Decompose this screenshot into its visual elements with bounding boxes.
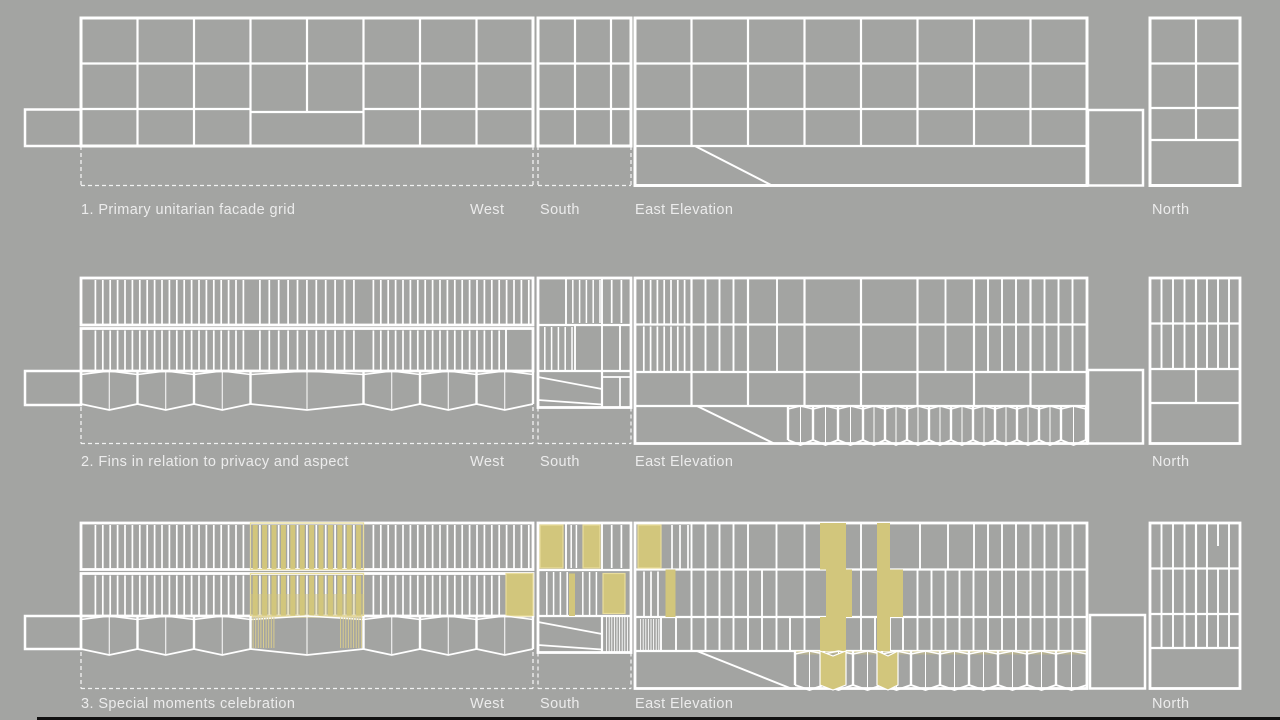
row1-label-north: North — [1152, 202, 1189, 218]
row3-label-north: North — [1152, 696, 1189, 712]
row2-label-west: West — [470, 454, 504, 470]
row1-label-west: West — [470, 202, 504, 218]
row2-label-east: East Elevation — [635, 454, 733, 470]
row2-label-south: South — [540, 454, 580, 470]
row1-title: 1. Primary unitarian facade grid — [81, 202, 295, 218]
row2-title: 2. Fins in relation to privacy and aspec… — [81, 454, 349, 470]
row1-label-south: South — [540, 202, 580, 218]
row3-label-south: South — [540, 696, 580, 712]
row3-title: 3. Special moments celebration — [81, 696, 295, 712]
facade-study-diagram: 1. Primary unitarian facade grid West So… — [0, 0, 1280, 720]
row2-label-north: North — [1152, 454, 1189, 470]
row3-label-east: East Elevation — [635, 696, 733, 712]
row3-label-west: West — [470, 696, 504, 712]
elevation-linework — [0, 0, 1280, 720]
row1-label-east: East Elevation — [635, 202, 733, 218]
bottom-bar — [37, 717, 1280, 720]
